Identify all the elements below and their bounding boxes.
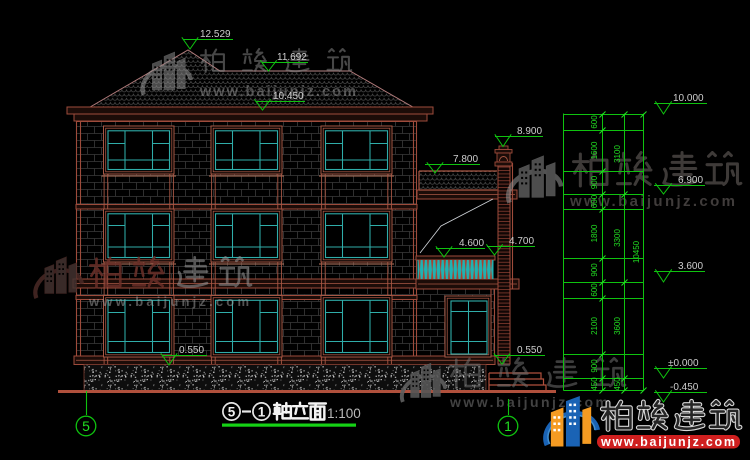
svg-text:±0.000: ±0.000 — [668, 358, 699, 369]
svg-text:3300: 3300 — [613, 229, 622, 247]
svg-text:1600: 1600 — [590, 141, 599, 159]
svg-text:600: 600 — [590, 283, 599, 297]
svg-text:600: 600 — [590, 115, 599, 129]
svg-text:11.692: 11.692 — [277, 52, 307, 63]
svg-text:1: 1 — [504, 418, 512, 434]
svg-text:5: 5 — [228, 405, 236, 420]
svg-text:12.529: 12.529 — [200, 29, 231, 40]
svg-text:3100: 3100 — [613, 145, 622, 163]
svg-text:7.800: 7.800 — [453, 154, 478, 165]
svg-text:4.600: 4.600 — [459, 238, 484, 249]
svg-text:8.900: 8.900 — [517, 126, 542, 137]
svg-text:2100: 2100 — [590, 317, 599, 335]
svg-text:900: 900 — [590, 263, 599, 277]
svg-text:900: 900 — [590, 175, 599, 189]
svg-text:0.550: 0.550 — [517, 345, 542, 356]
svg-text:10.000: 10.000 — [673, 93, 704, 104]
svg-text:5: 5 — [82, 418, 90, 434]
svg-text:900: 900 — [590, 359, 599, 373]
svg-text:1800: 1800 — [590, 224, 599, 242]
svg-text:450: 450 — [590, 377, 599, 391]
svg-text:600: 600 — [590, 194, 599, 208]
svg-text:1:100: 1:100 — [327, 406, 361, 421]
svg-text:0.550: 0.550 — [179, 345, 204, 356]
svg-text:10450: 10450 — [632, 240, 641, 263]
svg-text:1: 1 — [258, 405, 266, 420]
svg-text:4.700: 4.700 — [509, 236, 534, 247]
svg-text:10.450: 10.450 — [273, 91, 304, 102]
svg-text:3600: 3600 — [613, 317, 622, 335]
svg-text:3.600: 3.600 — [678, 261, 703, 272]
svg-text:450: 450 — [613, 377, 622, 391]
svg-text:6.900: 6.900 — [678, 175, 703, 186]
svg-text:-0.450: -0.450 — [670, 382, 699, 393]
